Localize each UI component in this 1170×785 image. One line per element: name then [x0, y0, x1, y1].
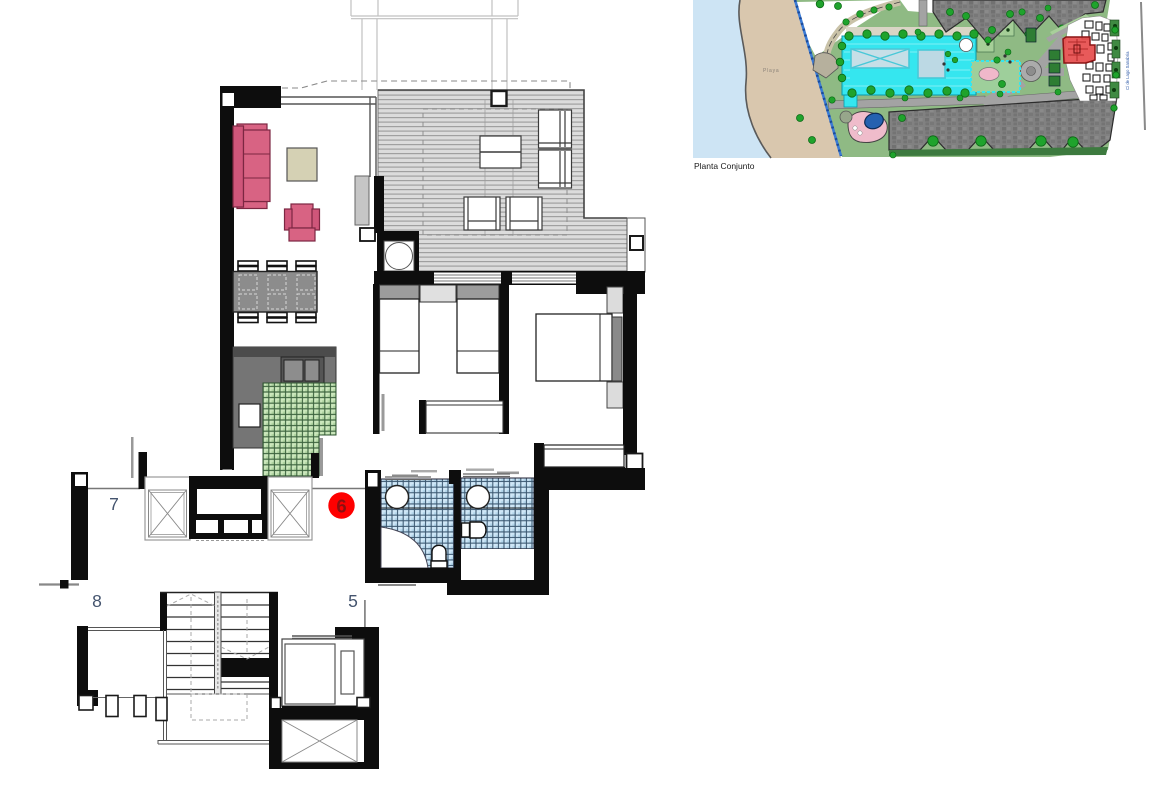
- svg-text:C/ de Lago Sanabria: C/ de Lago Sanabria: [1125, 51, 1130, 90]
- svg-text:6: 6: [336, 496, 346, 517]
- svg-text:Planta Conjunto: Planta Conjunto: [694, 161, 755, 171]
- svg-text:5: 5: [348, 591, 358, 611]
- svg-text:8: 8: [92, 591, 102, 611]
- svg-text:Playa: Playa: [763, 68, 780, 74]
- svg-text:7: 7: [109, 494, 119, 514]
